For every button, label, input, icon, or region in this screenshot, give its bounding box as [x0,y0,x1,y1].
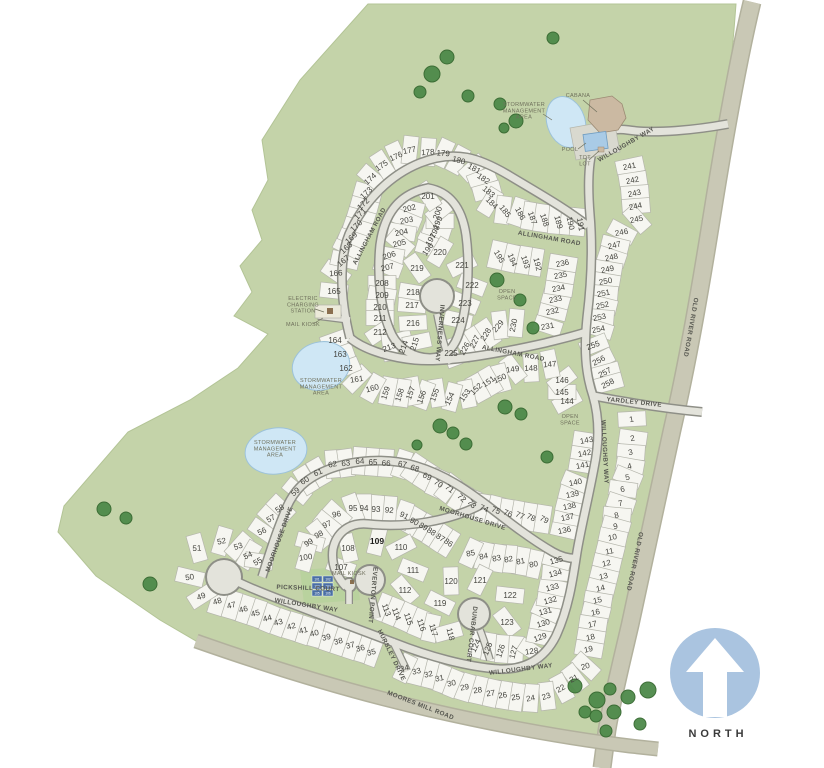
lot-number: 164 [328,336,342,345]
site-plan-svg: 101102103104105106STORMWATERMANAGEMENTAR… [0,0,824,768]
lot-number: 107 [334,563,348,572]
lot-number: 220 [433,248,447,257]
tree-icon [621,690,635,704]
lot-number: 166 [329,268,343,278]
lot-number: 224 [451,316,465,325]
lot-number: 119 [434,599,447,608]
amenity-label: ELECTRICCHARGINGSTATION [287,296,319,315]
tree-icon [490,273,504,287]
townhouse-unit-number: 102 [325,578,331,582]
lot-number: 93 [372,505,381,514]
north-indicator [670,628,760,718]
culdesac [207,560,241,594]
lot-number: 148 [524,364,538,373]
lot-number: 28 [473,685,484,695]
lot-number: 63 [341,458,351,468]
lot-number: 50 [185,572,196,582]
culdesac [421,280,453,312]
amenity-label: TOTLOT [579,155,591,167]
lot-number: 225 [444,349,458,358]
tree-icon [604,683,616,695]
lot-number: 27 [486,688,497,698]
tree-icon [589,692,605,708]
lot-number: 95 [349,504,358,513]
amenity-label: POOL [562,147,578,153]
lot-number: 212 [373,328,387,337]
tree-icon [414,86,426,98]
tree-icon [579,706,591,718]
lot-number: 216 [406,319,420,328]
lot-number: 145 [555,388,569,397]
lot-number: 120 [444,577,458,586]
tree-icon [541,451,553,463]
lot-number: 66 [381,459,391,469]
lot-number: 111 [407,566,420,575]
tree-icon [447,427,459,439]
lot-number: 64 [355,457,365,466]
lot-number: 149 [505,364,520,375]
tree-icon [515,408,527,420]
lot-number: 144 [560,397,574,406]
tree-icon [498,400,512,414]
tree-icon [590,710,602,722]
site-plan-map: 101102103104105106STORMWATERMANAGEMENTAR… [0,0,824,768]
tree-icon [634,718,646,730]
lot-number: 162 [339,364,353,373]
pool [583,131,608,151]
lot-number: 165 [327,287,341,296]
lot-number: 208 [375,279,389,288]
lot-number: 178 [421,147,435,157]
tree-icon [607,705,621,719]
tree-icon [527,322,539,334]
north-label: NORTH [668,728,768,740]
lot-number: 163 [333,350,347,359]
tree-icon [440,50,454,64]
tree-icon [462,90,474,102]
tree-icon [143,577,157,591]
lot-number: 51 [192,544,202,553]
tree-icon [412,440,422,450]
lot-number: 219 [410,264,424,273]
tree-icon [499,123,509,133]
tree-icon [97,502,111,516]
lot-number: 112 [399,586,412,595]
lot-number: 146 [555,376,569,385]
lot-number: 94 [360,504,369,513]
lot-number: 209 [375,291,389,300]
lot-number: 121 [473,576,487,585]
tree-icon [433,419,447,433]
lot-number: 122 [503,591,517,600]
lot-number: 218 [406,288,420,297]
lot-number: 217 [405,301,419,310]
lot-number: 26 [498,690,509,700]
amenity-label: OPENSPACE [560,414,580,426]
lot-number: 108 [341,544,355,553]
lot-number: 161 [349,374,364,385]
lot-number: 25 [511,692,522,702]
ev-charger [327,308,333,314]
amenity-label: OPENSPACE [497,289,517,301]
amenity-label: MAIL KIOSK [332,571,366,577]
amenity-label: MAIL KIOSK [286,322,320,328]
lot-number: 128 [524,646,539,657]
lot-number: 109 [370,536,384,546]
tree-icon [600,725,612,737]
amenity-label: CABANA [566,93,590,99]
tree-icon [460,438,472,450]
lot-number: 222 [465,281,479,290]
townhouse-unit-number: 101 [314,578,320,582]
tree-icon [120,512,132,524]
lot-number: 221 [455,261,469,270]
tree-icon [424,66,440,82]
tree-icon [547,32,559,44]
lot-number: 201 [421,192,435,201]
lot-number: 210 [373,303,387,312]
lot-number: 147 [543,359,558,369]
lot-number: 100 [298,552,313,563]
lot-number: 110 [395,543,408,552]
tree-icon [640,682,656,698]
lot-number: 223 [458,299,472,308]
lot-number: 123 [500,618,514,627]
lot-number: 92 [384,505,394,515]
mail-kiosk-structure [350,580,354,584]
lot-number: 211 [374,314,387,323]
lot-number: 179 [436,148,450,158]
lot-number: 65 [369,458,378,467]
